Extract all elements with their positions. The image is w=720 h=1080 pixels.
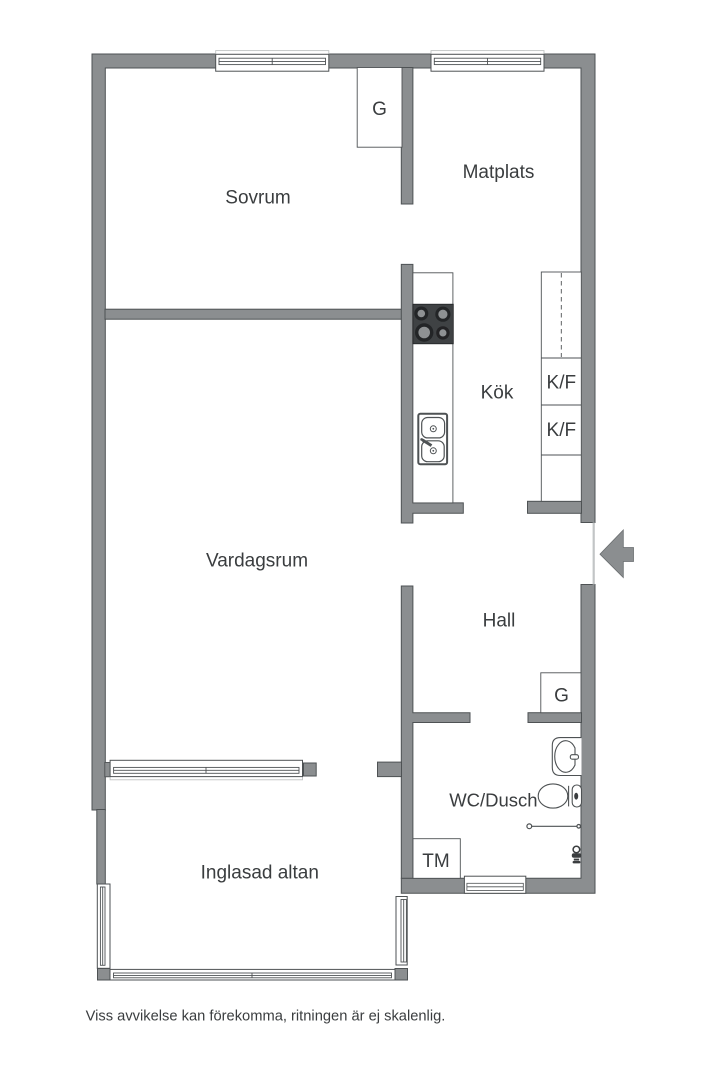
- svg-text:Viss avvikelse kan förekomma,: Viss avvikelse kan förekomma, ritningen …: [86, 1009, 446, 1025]
- svg-text:Vardagsrum: Vardagsrum: [206, 551, 308, 572]
- svg-text:TM: TM: [422, 851, 449, 872]
- svg-text:Hall: Hall: [483, 610, 516, 631]
- svg-text:K/F: K/F: [547, 373, 577, 394]
- svg-text:G: G: [554, 686, 569, 707]
- svg-text:Kök: Kök: [481, 382, 514, 403]
- svg-text:K/F: K/F: [547, 420, 577, 441]
- svg-text:Inglasad altan: Inglasad altan: [201, 863, 319, 884]
- svg-text:G: G: [372, 99, 387, 120]
- svg-text:Matplats: Matplats: [463, 162, 535, 183]
- svg-text:Sovrum: Sovrum: [225, 188, 290, 209]
- svg-text:WC/Dusch: WC/Dusch: [449, 789, 537, 810]
